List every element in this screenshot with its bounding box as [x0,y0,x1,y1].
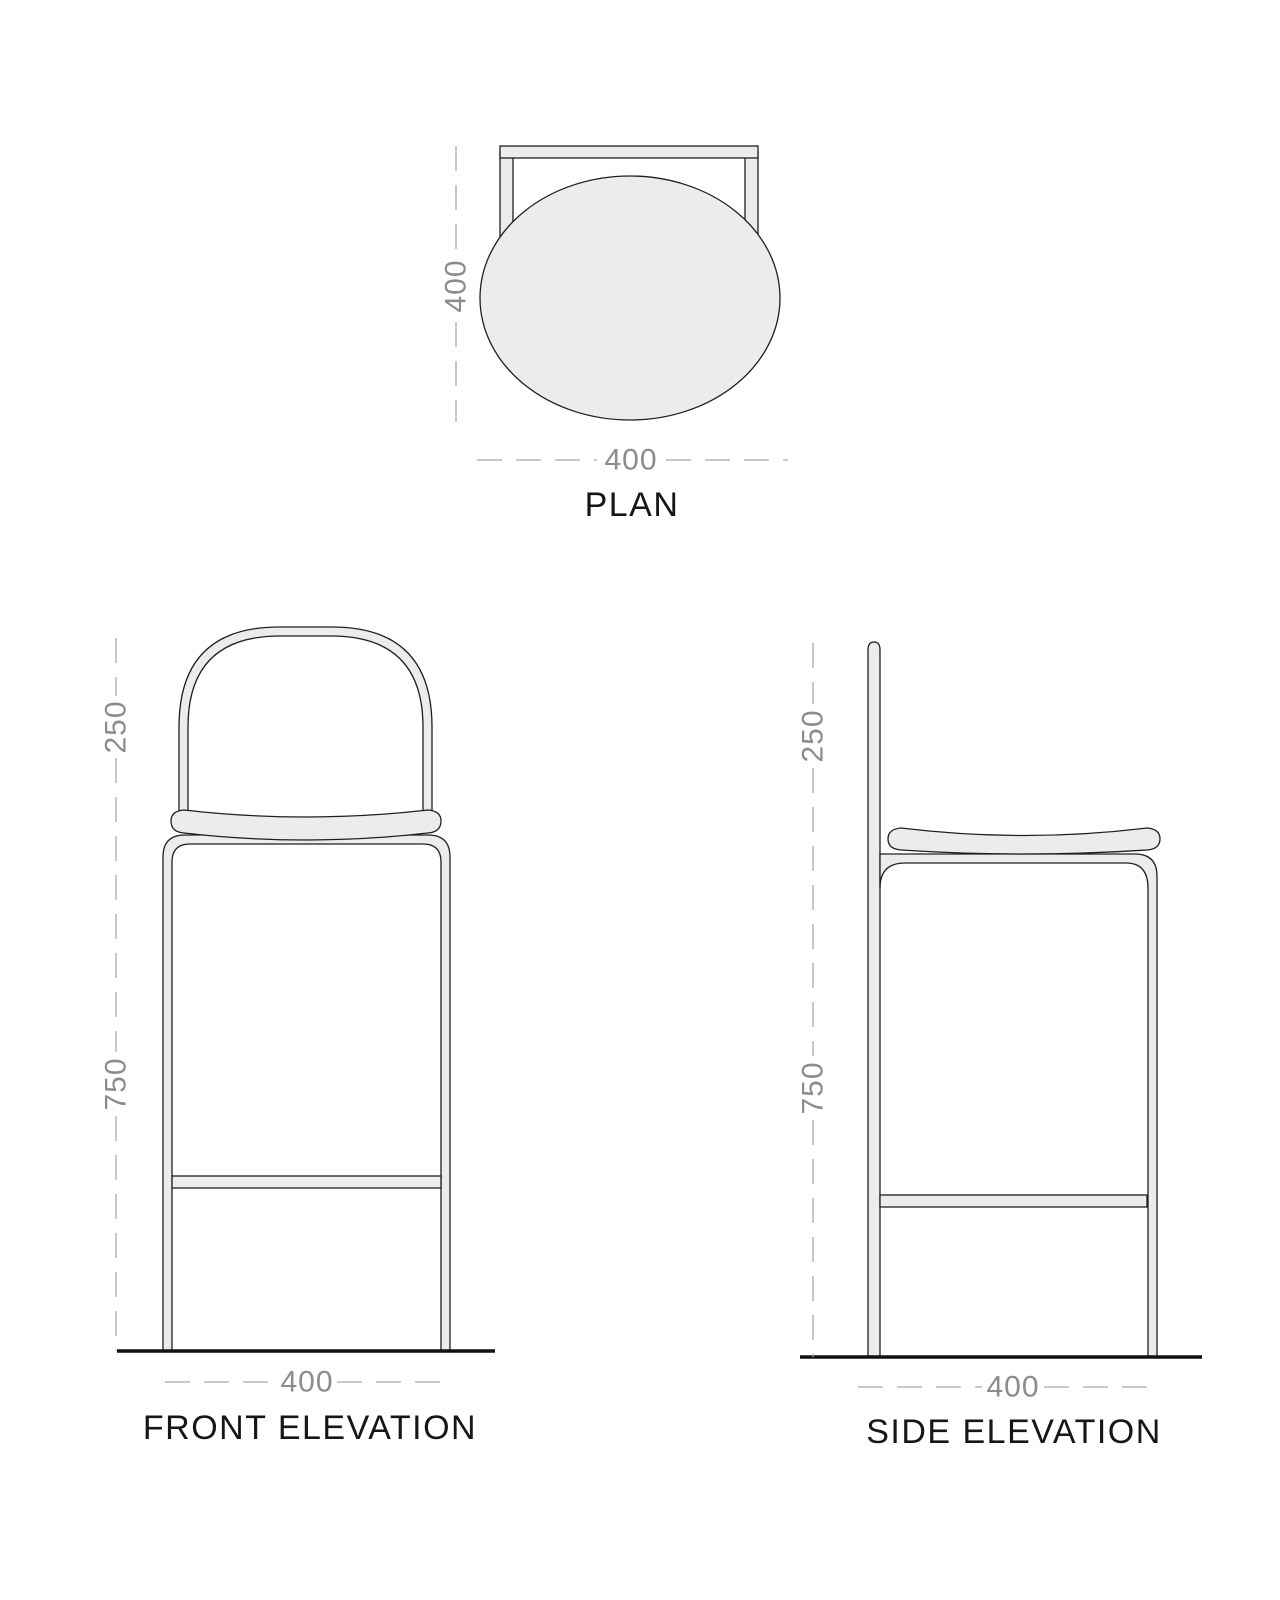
front-elevation-view: 250 750 400 FRONT ELEVATION [100,627,496,1447]
bar-stool-technical-drawing: 400 400 PLAN [0,0,1280,1600]
side-depth-dim-label: 400 [986,1371,1039,1404]
front-width-dimension: 400 [165,1366,447,1399]
side-elevation-view: 250 750 400 SIDE ELEVATION [797,642,1203,1451]
side-footrest [880,1195,1147,1207]
plan-title: PLAN [585,486,680,524]
front-height-dimension: 250 750 [100,638,133,1351]
front-footrest [172,1176,441,1188]
front-backrest-arch [179,627,432,816]
side-elevation-title: SIDE ELEVATION [866,1413,1162,1451]
side-frame-rail-and-rear-leg [880,854,1157,1357]
plan-depth-dim-label: 400 [440,259,473,312]
side-backrest-post [868,642,880,1357]
plan-seat-ellipse [480,176,780,420]
front-width-dim-label: 400 [280,1366,333,1399]
plan-backrest-bar [500,146,758,158]
drawing-sheet: 400 400 PLAN [0,0,1280,1600]
side-backrest-dim-label: 250 [797,709,830,762]
front-leg-frame [163,835,450,1351]
front-seat-cushion [171,810,441,840]
plan-width-dim-label: 400 [604,444,657,477]
plan-width-dimension: 400 [477,444,788,477]
side-seat-height-dim-label: 750 [797,1061,830,1114]
side-seat-cushion [888,828,1160,854]
front-backrest-dim-label: 250 [100,700,133,753]
plan-view: 400 400 PLAN [440,146,789,524]
front-seat-height-dim-label: 750 [100,1057,133,1110]
side-height-dimension: 250 750 [797,643,830,1357]
front-elevation-title: FRONT ELEVATION [143,1409,477,1447]
side-depth-dimension: 400 [858,1371,1160,1404]
plan-depth-dimension: 400 [440,146,473,422]
